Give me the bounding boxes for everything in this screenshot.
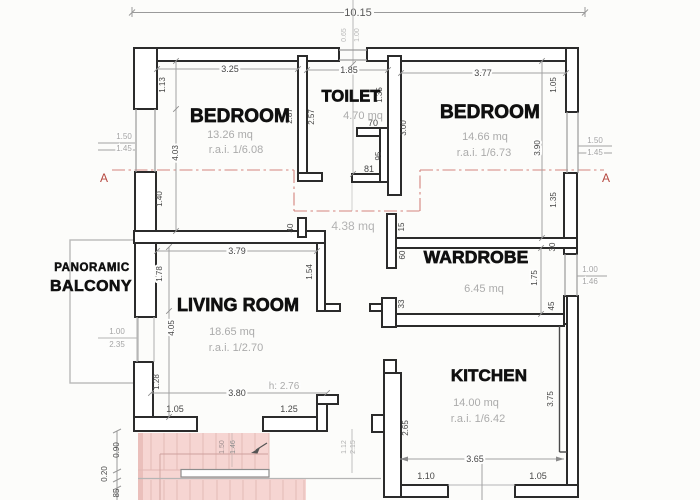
svg-text:1.75: 1.75 [530,270,539,286]
svg-text:BEDROOM: BEDROOM [440,102,540,123]
svg-text:1.00: 1.00 [109,327,125,336]
svg-text:1.45: 1.45 [116,144,132,153]
svg-text:BEDROOM: BEDROOM [190,106,290,127]
svg-text:KITCHEN: KITCHEN [451,366,527,385]
svg-text:2.15: 2.15 [350,440,357,454]
svg-text:45: 45 [547,301,556,310]
svg-text:3.65: 3.65 [466,454,484,464]
svg-text:18.65 mq: 18.65 mq [209,326,255,338]
svg-text:3.77: 3.77 [474,68,492,78]
svg-text:0.20: 0.20 [100,466,109,482]
svg-text:33: 33 [397,299,406,308]
svg-text:4.05: 4.05 [167,320,176,336]
svg-text:40: 40 [286,223,295,232]
svg-text:1.00: 1.00 [582,265,598,274]
svg-text:0.90: 0.90 [112,442,121,458]
svg-text:14.66 mq: 14.66 mq [462,131,508,143]
svg-text:30: 30 [548,242,557,251]
svg-text:r.a.i. 1/2.70: r.a.i. 1/2.70 [209,342,263,354]
svg-text:1.05: 1.05 [549,77,558,93]
svg-text:3.90: 3.90 [533,140,542,156]
svg-text:2.65: 2.65 [401,420,410,436]
svg-text:13.26 mq: 13.26 mq [207,129,253,141]
svg-text:81: 81 [364,164,374,174]
svg-text:4.03: 4.03 [171,145,180,161]
svg-text:h: 2.76: h: 2.76 [269,381,300,392]
svg-text:3.80: 3.80 [228,388,246,398]
svg-text:0.65: 0.65 [341,28,348,42]
svg-text:2.57: 2.57 [307,109,316,125]
svg-text:3.79: 3.79 [228,246,246,256]
svg-text:1.46: 1.46 [230,440,237,454]
svg-text:1.50: 1.50 [219,440,226,454]
svg-text:3.00: 3.00 [399,120,408,136]
svg-text:1.12: 1.12 [341,440,348,454]
svg-text:60: 60 [398,250,407,259]
svg-text:2.35: 2.35 [109,340,125,349]
svg-text:14.00 mq: 14.00 mq [453,397,499,409]
svg-text:1.40: 1.40 [155,191,164,207]
svg-text:1.85: 1.85 [340,65,358,75]
svg-text:15: 15 [397,222,406,231]
svg-text:1.45: 1.45 [587,148,603,157]
svg-text:1.54: 1.54 [305,264,314,280]
svg-text:6.45 mq: 6.45 mq [464,283,504,295]
svg-text:WARDROBE: WARDROBE [424,247,529,267]
svg-text:4.70 mq: 4.70 mq [343,110,383,122]
svg-text:3.75: 3.75 [546,391,555,407]
svg-text:r.a.i. 1/6.42: r.a.i. 1/6.42 [451,413,505,425]
svg-text:r.a.i. 1/6.73: r.a.i. 1/6.73 [457,147,511,159]
svg-text:1.25: 1.25 [280,404,298,414]
svg-text:BALCONY: BALCONY [50,278,132,295]
svg-text:1.00: 1.00 [354,28,361,42]
svg-text:PANORAMIC: PANORAMIC [54,262,129,274]
svg-text:85: 85 [112,488,121,497]
svg-text:95: 95 [374,151,383,160]
svg-text:LIVING ROOM: LIVING ROOM [177,295,299,315]
svg-text:A: A [100,171,108,185]
svg-text:1.13: 1.13 [158,77,167,93]
svg-text:1.10: 1.10 [417,471,435,481]
svg-text:4.38 mq: 4.38 mq [331,219,374,233]
svg-text:1.28: 1.28 [152,374,161,390]
svg-text:1.35: 1.35 [549,192,558,208]
svg-text:1.50: 1.50 [587,136,603,145]
svg-text:TOILET: TOILET [322,88,381,106]
svg-text:1.50: 1.50 [116,132,132,141]
svg-text:A: A [602,171,610,185]
svg-text:1.78: 1.78 [155,266,164,282]
svg-text:10.15: 10.15 [344,7,372,19]
svg-text:1.46: 1.46 [582,277,598,286]
svg-text:r.a.i. 1/6.08: r.a.i. 1/6.08 [209,144,263,156]
svg-text:1.05: 1.05 [166,404,184,414]
svg-text:1.05: 1.05 [529,471,547,481]
svg-text:3.25: 3.25 [221,64,239,74]
